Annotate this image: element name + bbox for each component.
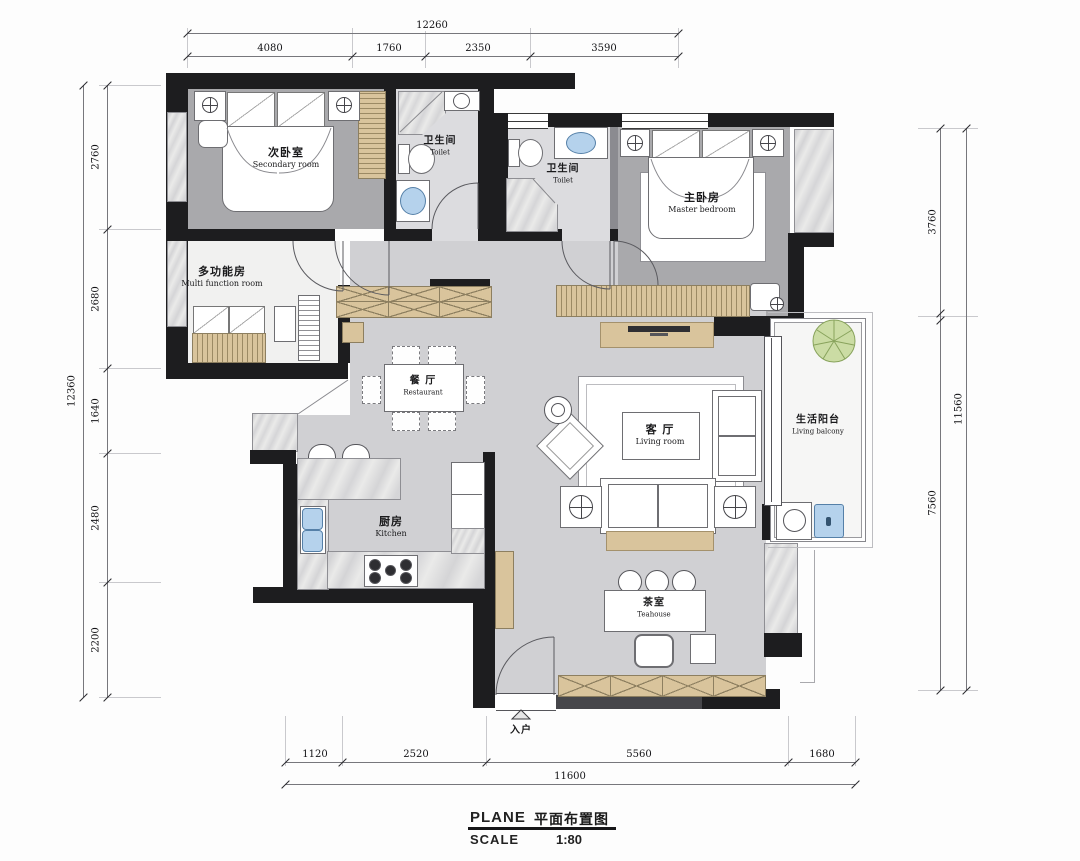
dim-line-top-segments [187, 56, 678, 57]
balcony-sink-faucet [826, 517, 831, 526]
room-label-toilet1: 卫生间 Toilet [424, 135, 457, 156]
wall [166, 363, 348, 379]
wardrobe [556, 285, 750, 317]
extension-line [918, 316, 978, 317]
dim-line-top-total [187, 33, 678, 34]
hallway-floor [394, 241, 618, 285]
room-label-en: Toilet [424, 148, 457, 157]
dining-chair [362, 376, 381, 404]
dim-left-total: 12360 [67, 373, 78, 409]
bed-pillow [227, 92, 275, 128]
dining-chair [428, 346, 456, 365]
room-label-zh: 客 厅 [636, 423, 685, 437]
dim-line-left-segments [107, 85, 108, 697]
tatami-bed [192, 333, 266, 363]
dim-line-left-total [83, 85, 84, 697]
dim-top-seg: 4080 [255, 43, 284, 54]
wall [548, 113, 622, 127]
room-label-en: Toilet [547, 176, 580, 185]
wall [283, 464, 297, 588]
extension-line [352, 28, 353, 68]
extension-line [285, 716, 286, 766]
cabinet-cell [713, 676, 765, 696]
hallway-floor [350, 241, 396, 285]
dim-left-seg: 2760 [91, 142, 102, 171]
room-label-dining: 餐 厅 Restaurant [403, 375, 442, 396]
side-cabinet [342, 322, 364, 343]
desk [274, 306, 296, 342]
room-label-en: Restaurant [403, 388, 442, 397]
dim-left-seg: 2680 [91, 284, 102, 313]
tv-stand [650, 333, 668, 336]
window-sill [252, 413, 298, 452]
window-sill [167, 112, 187, 202]
wall [473, 588, 495, 708]
room-label-zh: 多功能房 [181, 265, 262, 279]
room-label-en: Master bedroom [668, 205, 735, 215]
dim-bottom-total: 11600 [552, 771, 588, 782]
wall [166, 73, 575, 89]
room-label-en: Teahouse [637, 610, 670, 619]
dim-bottom-seg: 1680 [807, 749, 836, 760]
room-label-master: 主卧房 Master bedroom [668, 191, 735, 215]
room-label-living: 客 厅 Living room [636, 423, 685, 447]
floor-plan-page: { "title_block": { "plane_label": "PLANE… [0, 0, 1080, 861]
burner [369, 572, 381, 584]
tv [628, 326, 690, 332]
wall [250, 450, 296, 464]
window-sill [794, 129, 834, 233]
room-label-teahouse: 茶室 Teahouse [637, 597, 670, 618]
wall [396, 229, 432, 241]
downlight-symbol [627, 135, 643, 151]
extension-line [486, 716, 487, 766]
window [622, 113, 708, 129]
window-sill [764, 543, 798, 637]
wall [610, 229, 618, 241]
extension-line [918, 128, 978, 129]
room-label-zh: 茶室 [637, 597, 670, 610]
title-plane-label: PLANE [470, 809, 526, 826]
cabinet-cell [337, 302, 388, 317]
fridge-divider [452, 494, 482, 495]
cabinet-cell [337, 287, 388, 302]
wall [253, 587, 475, 603]
sofa-mat [606, 531, 714, 551]
toilet-bowl [518, 139, 543, 167]
tea-side-table [690, 634, 716, 664]
room-label-secondary: 次卧室 Secondary room [253, 146, 319, 170]
burner [369, 559, 381, 571]
downlight-symbol [770, 297, 784, 311]
downlight-symbol [723, 495, 747, 519]
side-sofa-cushion [718, 436, 756, 476]
dim-right-seg: 3760 [928, 207, 939, 236]
title-divider [468, 827, 616, 830]
room-label-zh: 卫生间 [424, 135, 457, 148]
burner [400, 572, 412, 584]
bedside-table [198, 120, 228, 148]
hall-cabinet [336, 301, 492, 318]
piano [298, 295, 320, 361]
floor-lamp-inner [551, 403, 565, 417]
room-label-zh: 生活阳台 [792, 414, 844, 427]
room-label-zh: 次卧室 [253, 146, 319, 160]
entrance-label: 入户 [510, 725, 532, 738]
room-label-multi: 多功能房 Multi function room [181, 265, 262, 289]
title-scale-value: 1:80 [556, 832, 582, 847]
bed-pillow [702, 130, 750, 160]
cabinet-cell [439, 287, 491, 302]
dim-top-seg: 2350 [463, 43, 492, 54]
entry-door-opening [496, 693, 556, 711]
dining-chair [428, 412, 456, 431]
room-label-en: Secondary room [253, 160, 319, 170]
interior-wall [610, 127, 618, 229]
room-label-en: Multi function room [181, 279, 262, 289]
downlight-symbol [202, 97, 218, 113]
side-sofa-cushion [718, 396, 756, 436]
burner [385, 565, 396, 576]
wall [478, 89, 494, 241]
kitchen-island [297, 458, 401, 500]
bed-pillow [229, 306, 265, 334]
room-label-en: Living balcony [792, 427, 844, 436]
room-label-zh: 卫生间 [547, 163, 580, 176]
dim-top-seg: 3590 [589, 43, 618, 54]
dim-line-bottom-segments [285, 762, 855, 763]
kitchen-sink [302, 508, 323, 530]
wall [494, 113, 508, 241]
cabinet-cell [439, 302, 491, 317]
downlight-symbol [336, 97, 352, 113]
dining-chair [392, 412, 420, 431]
wardrobe [358, 91, 386, 179]
dim-bottom-seg: 5560 [624, 749, 653, 760]
sofa-cushion [658, 484, 708, 528]
dim-right-seg: 7560 [928, 488, 939, 517]
dim-left-seg: 2480 [91, 503, 102, 532]
room-label-zh: 厨房 [375, 515, 406, 529]
balcony-slider-door [764, 336, 782, 506]
room-label-zh: 餐 厅 [403, 375, 442, 388]
dining-chair [392, 346, 420, 365]
bed-pillow [193, 306, 229, 334]
teahouse-cabinet [558, 675, 766, 697]
burner [400, 559, 412, 571]
wall [556, 695, 706, 709]
exterior-frame-line [800, 550, 815, 683]
room-label-kitchen: 厨房 Kitchen [375, 515, 406, 539]
sink [400, 187, 426, 215]
balcony-slider-rail [771, 338, 772, 502]
wall [708, 113, 834, 127]
dim-left-seg: 2200 [91, 625, 102, 654]
wall [788, 233, 834, 247]
cabinet-cell [559, 676, 610, 696]
bed-pillow [652, 130, 700, 160]
washbasin [566, 132, 596, 154]
dim-line-right-segments [940, 128, 941, 690]
bed-pillow [277, 92, 325, 128]
extension-line [530, 28, 531, 68]
dim-left-seg: 1640 [91, 396, 102, 425]
room-label-en: Kitchen [375, 529, 406, 539]
dining-chair [466, 376, 485, 404]
kitchen-sink [302, 530, 323, 552]
extension-line [342, 716, 343, 766]
dim-bottom-seg: 1120 [300, 749, 329, 760]
cabinet-cell [388, 287, 440, 302]
extension-line [855, 716, 856, 766]
tea-chair [634, 634, 674, 668]
dim-top-total: 12260 [414, 20, 450, 31]
extension-line [425, 28, 426, 68]
washing-machine-drum [783, 509, 806, 532]
entrance-label-text: 入户 [510, 725, 532, 738]
downlight-symbol [760, 135, 776, 151]
fridge [451, 462, 485, 530]
entrance-arrow-icon [512, 710, 530, 719]
room-label-balcony: 生活阳台 Living balcony [792, 414, 844, 435]
extension-line [788, 716, 789, 766]
title-plane-zh: 平面布置图 [534, 809, 609, 829]
room-label-en: Living room [636, 437, 685, 447]
wall [166, 229, 335, 241]
dim-top-seg: 1760 [374, 43, 403, 54]
cabinet-cell [662, 676, 714, 696]
extension-line [918, 690, 978, 691]
kitchen-counter-right [451, 528, 485, 554]
downlight-symbol [569, 495, 593, 519]
cabinet-cell [388, 302, 440, 317]
title-scale-label: SCALE [470, 832, 519, 847]
dim-line-bottom-total [285, 784, 855, 785]
washbasin [453, 93, 470, 109]
shoe-cabinet [495, 551, 514, 629]
window [508, 113, 548, 129]
dim-line-right-total [966, 128, 967, 690]
wall [764, 633, 802, 657]
dim-right-total: 11560 [954, 391, 965, 427]
room-label-zh: 主卧房 [668, 191, 735, 205]
step-edge-line [298, 380, 348, 414]
sofa-cushion [608, 484, 658, 528]
dim-bottom-seg: 2520 [401, 749, 430, 760]
cabinet-cell [610, 676, 662, 696]
room-label-toilet2: 卫生间 Toilet [547, 163, 580, 184]
